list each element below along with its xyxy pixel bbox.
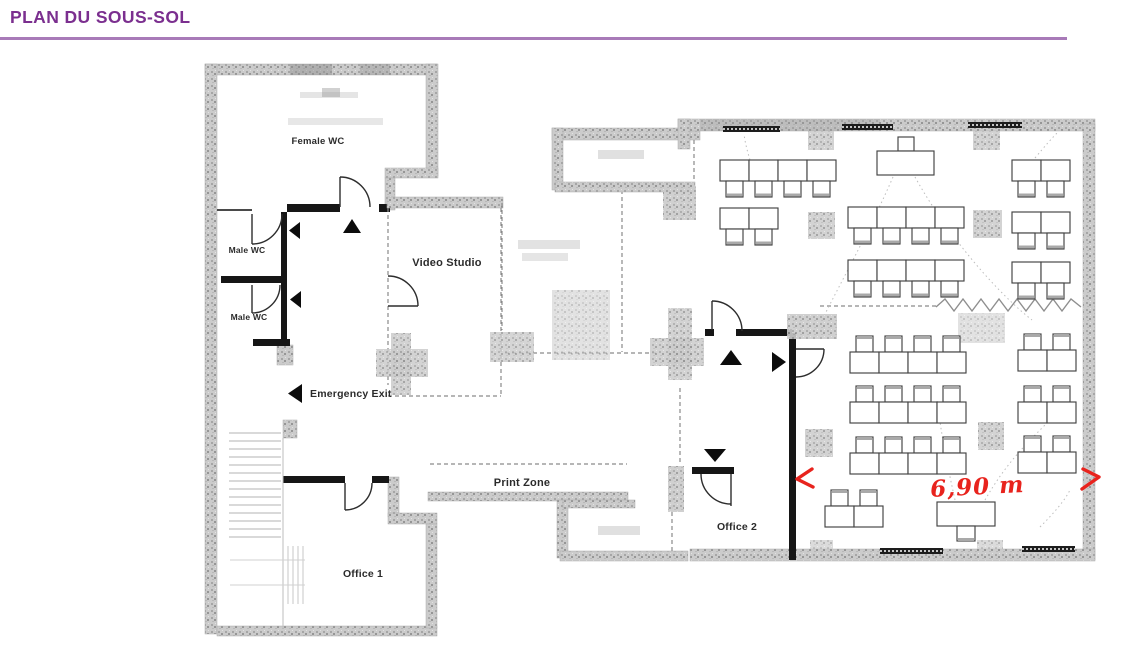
staircase xyxy=(229,433,305,628)
male-wc-1-door xyxy=(252,214,282,244)
hall-access-door xyxy=(796,349,824,377)
video-studio-door xyxy=(388,276,418,306)
print-zone-corridor xyxy=(428,464,688,561)
office-2-inner-door xyxy=(701,474,731,506)
room-label-male-wc-2: Male WC xyxy=(231,312,268,322)
triangle-left-icon xyxy=(289,222,300,239)
middle-zone xyxy=(376,190,704,395)
zone-label-emergency-exit: Emergency Exit xyxy=(310,388,392,400)
door-swing-triangles-left xyxy=(289,219,361,308)
document-page: PLAN DU SOUS-SOL xyxy=(0,0,1122,657)
zigzag-divider xyxy=(936,299,1081,311)
male-wc-2-door xyxy=(252,285,280,313)
room-label-office-2: Office 2 xyxy=(717,521,757,533)
presenter-desk-top xyxy=(877,137,934,175)
hall-partition xyxy=(820,299,1081,311)
triangle-left-icon xyxy=(290,291,301,308)
office-2-entry-door xyxy=(712,301,742,331)
triangle-up-icon xyxy=(343,219,361,233)
desk-groups-lower xyxy=(825,334,1076,541)
room-label-female-wc: Female WC xyxy=(291,136,344,147)
floorplan-drawing: 6,90 m Female WC Male WC Male WC Video S… xyxy=(0,0,1122,657)
desk-groups-upper xyxy=(720,137,1070,299)
presenter-desk-bottom xyxy=(937,502,995,541)
triangle-right-icon xyxy=(772,352,786,372)
room-label-office-1: Office 1 xyxy=(343,568,383,580)
zone-label-print-zone: Print Zone xyxy=(494,477,550,489)
office-1-door xyxy=(345,483,372,510)
scan-smudges xyxy=(288,88,383,125)
triangle-down-icon xyxy=(704,449,726,462)
triangle-up-icon xyxy=(720,350,742,365)
red-arrow-left-icon xyxy=(797,469,813,487)
triangle-left-icon xyxy=(288,384,302,403)
room-label-video-studio: Video Studio xyxy=(412,257,482,269)
dimension-text: 6,90 m xyxy=(929,471,1025,503)
room-label-male-wc-1: Male WC xyxy=(229,245,266,255)
female-wc-door xyxy=(340,177,370,207)
